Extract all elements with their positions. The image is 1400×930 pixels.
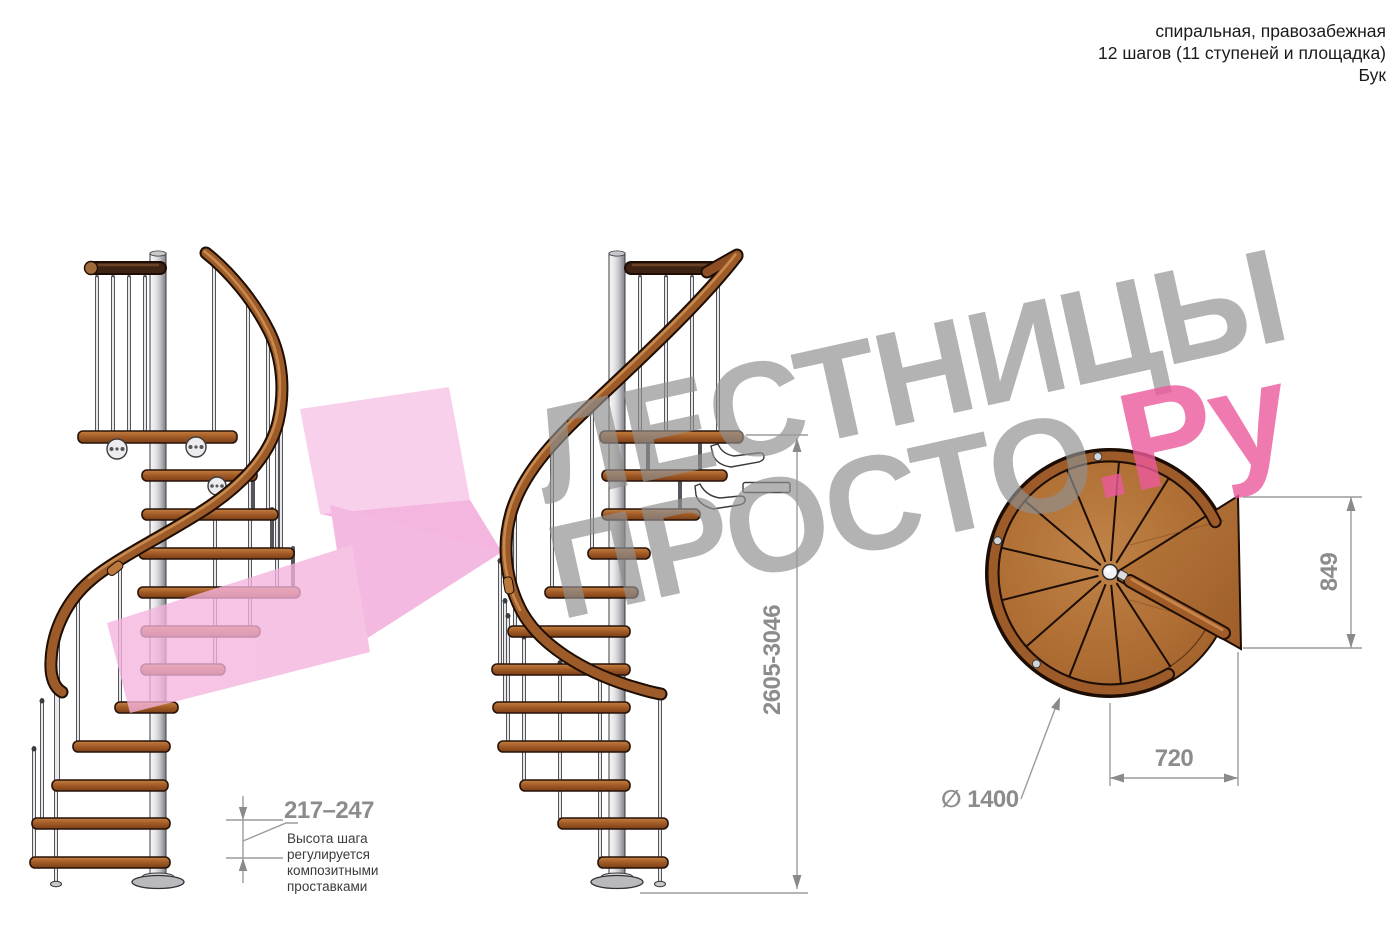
dimension-platform-depth: 849 [1243,497,1362,648]
note-line-1: Высота шага [287,831,368,846]
dimension-diameter: ∅ 1400 [941,697,1060,813]
staircase-spec-sheet: ЛЕСТНИЦЫ ПРОСТО .Ру 2605-3046 217–247 Вы… [0,0,1400,930]
top-railing [631,265,712,268]
dimension-step-height: 217–247 Высота шага регулируется компози… [226,796,378,894]
header-line-2: 12 шагов (11 ступеней и площадка) [1098,43,1386,63]
dim-platform-depth-label: 849 [1316,553,1343,592]
top-railing [85,262,161,275]
header-line-3: Бук [1358,65,1386,85]
pole-top-view [1103,565,1118,580]
header-line-1: спиральная, правозабежная [1155,21,1386,41]
dim-total-height-label: 2605-3046 [759,605,786,715]
dim-diameter-label: ∅ 1400 [941,786,1019,813]
note-line-4: проставками [287,879,367,894]
dim-step-height-label: 217–247 [284,797,374,824]
dim-platform-width-label: 720 [1155,745,1194,772]
pole-base-flange [591,876,643,889]
pole-base-flange [132,876,184,889]
side-view-a [30,251,300,889]
header-info: спиральная, правозабежная 12 шагов (11 с… [1098,21,1386,85]
note-line-3: композитными [287,863,378,878]
note-line-2: регулируется [287,847,370,862]
staircase-drawing: ЛЕСТНИЦЫ ПРОСТО .Ру 2605-3046 217–247 Вы… [0,0,1400,930]
